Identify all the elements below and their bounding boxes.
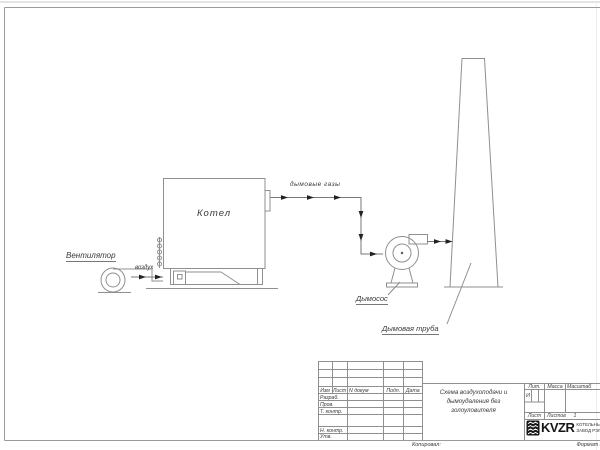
document-title-line2: дымоудаления без — [423, 397, 524, 406]
document-title-line3: золоуловителя — [423, 406, 524, 415]
titleblock-row-prov: Пров. — [320, 402, 334, 408]
drawing-frame — [5, 8, 600, 441]
boiler-drawing — [146, 179, 278, 289]
titleblock-sheets-label: Листов — [547, 413, 566, 419]
company-name-line2: ЗАВОД РЭП — [576, 428, 600, 434]
air-flow-arrows — [131, 275, 163, 280]
exhauster-drawing — [386, 235, 453, 296]
titleblock-col-izm: Изм — [318, 388, 332, 394]
titleblock-col-list: Лист — [332, 388, 347, 394]
kvzr-logo-icon — [526, 420, 540, 436]
titleblock-row-nkontr: Н. контр. — [320, 428, 343, 434]
titleblock-row-tkontr: Т. контр. — [320, 409, 342, 415]
titleblock-lit-value: И — [525, 393, 532, 399]
titleblock-row-utv: Утв. — [320, 434, 332, 440]
drawing-page: Вентилятор воздух Котел дымовые газы Дым… — [0, 0, 600, 450]
company-name-line1: КОТЕЛЬНЫЙ — [576, 422, 600, 428]
document-title: Схема воздухоподачи и дымоудаления без з… — [423, 388, 524, 416]
titleblock-row-razrab: Разраб. — [320, 395, 339, 401]
document-title-line1: Схема воздухоподачи и — [423, 388, 524, 397]
flue-gas-label: дымовые газы — [290, 181, 340, 188]
chimney-drawing — [444, 59, 503, 325]
titleblock-col-ndocum: N докум — [349, 388, 369, 394]
page-edges — [0, 2, 600, 450]
titleblock-col-data: Дата — [404, 388, 423, 394]
titleblock-sheet-label: Лист — [525, 413, 545, 419]
titleblock-lit-header: Лит. — [525, 384, 545, 390]
titleblock-scale-header: Масштаб — [567, 384, 591, 390]
titleblock-mass-header: Масса — [545, 384, 566, 390]
company-logo-text: KVZR — [541, 420, 574, 435]
titleblock-col-podp: Подп. — [384, 388, 404, 394]
schematic-svg — [0, 0, 600, 450]
copied-by-label: Копировал: — [412, 442, 441, 448]
flue-gas-duct — [271, 195, 384, 256]
chimney-label: Дымовая труба — [382, 324, 439, 335]
fan-label: Вентилятор — [66, 251, 116, 262]
format-label: Формат А3 — [577, 442, 600, 448]
air-flow-label: воздух — [135, 265, 153, 271]
boiler-label: Котел — [163, 208, 265, 219]
company-name: КОТЕЛЬНЫЙ ЗАВОД РЭП — [576, 422, 600, 433]
titleblock-sheets-value: 1 — [574, 413, 577, 419]
exhauster-label: Дымосос — [356, 294, 388, 305]
company-block: KVZR КОТЕЛЬНЫЙ ЗАВОД РЭП — [526, 420, 600, 436]
